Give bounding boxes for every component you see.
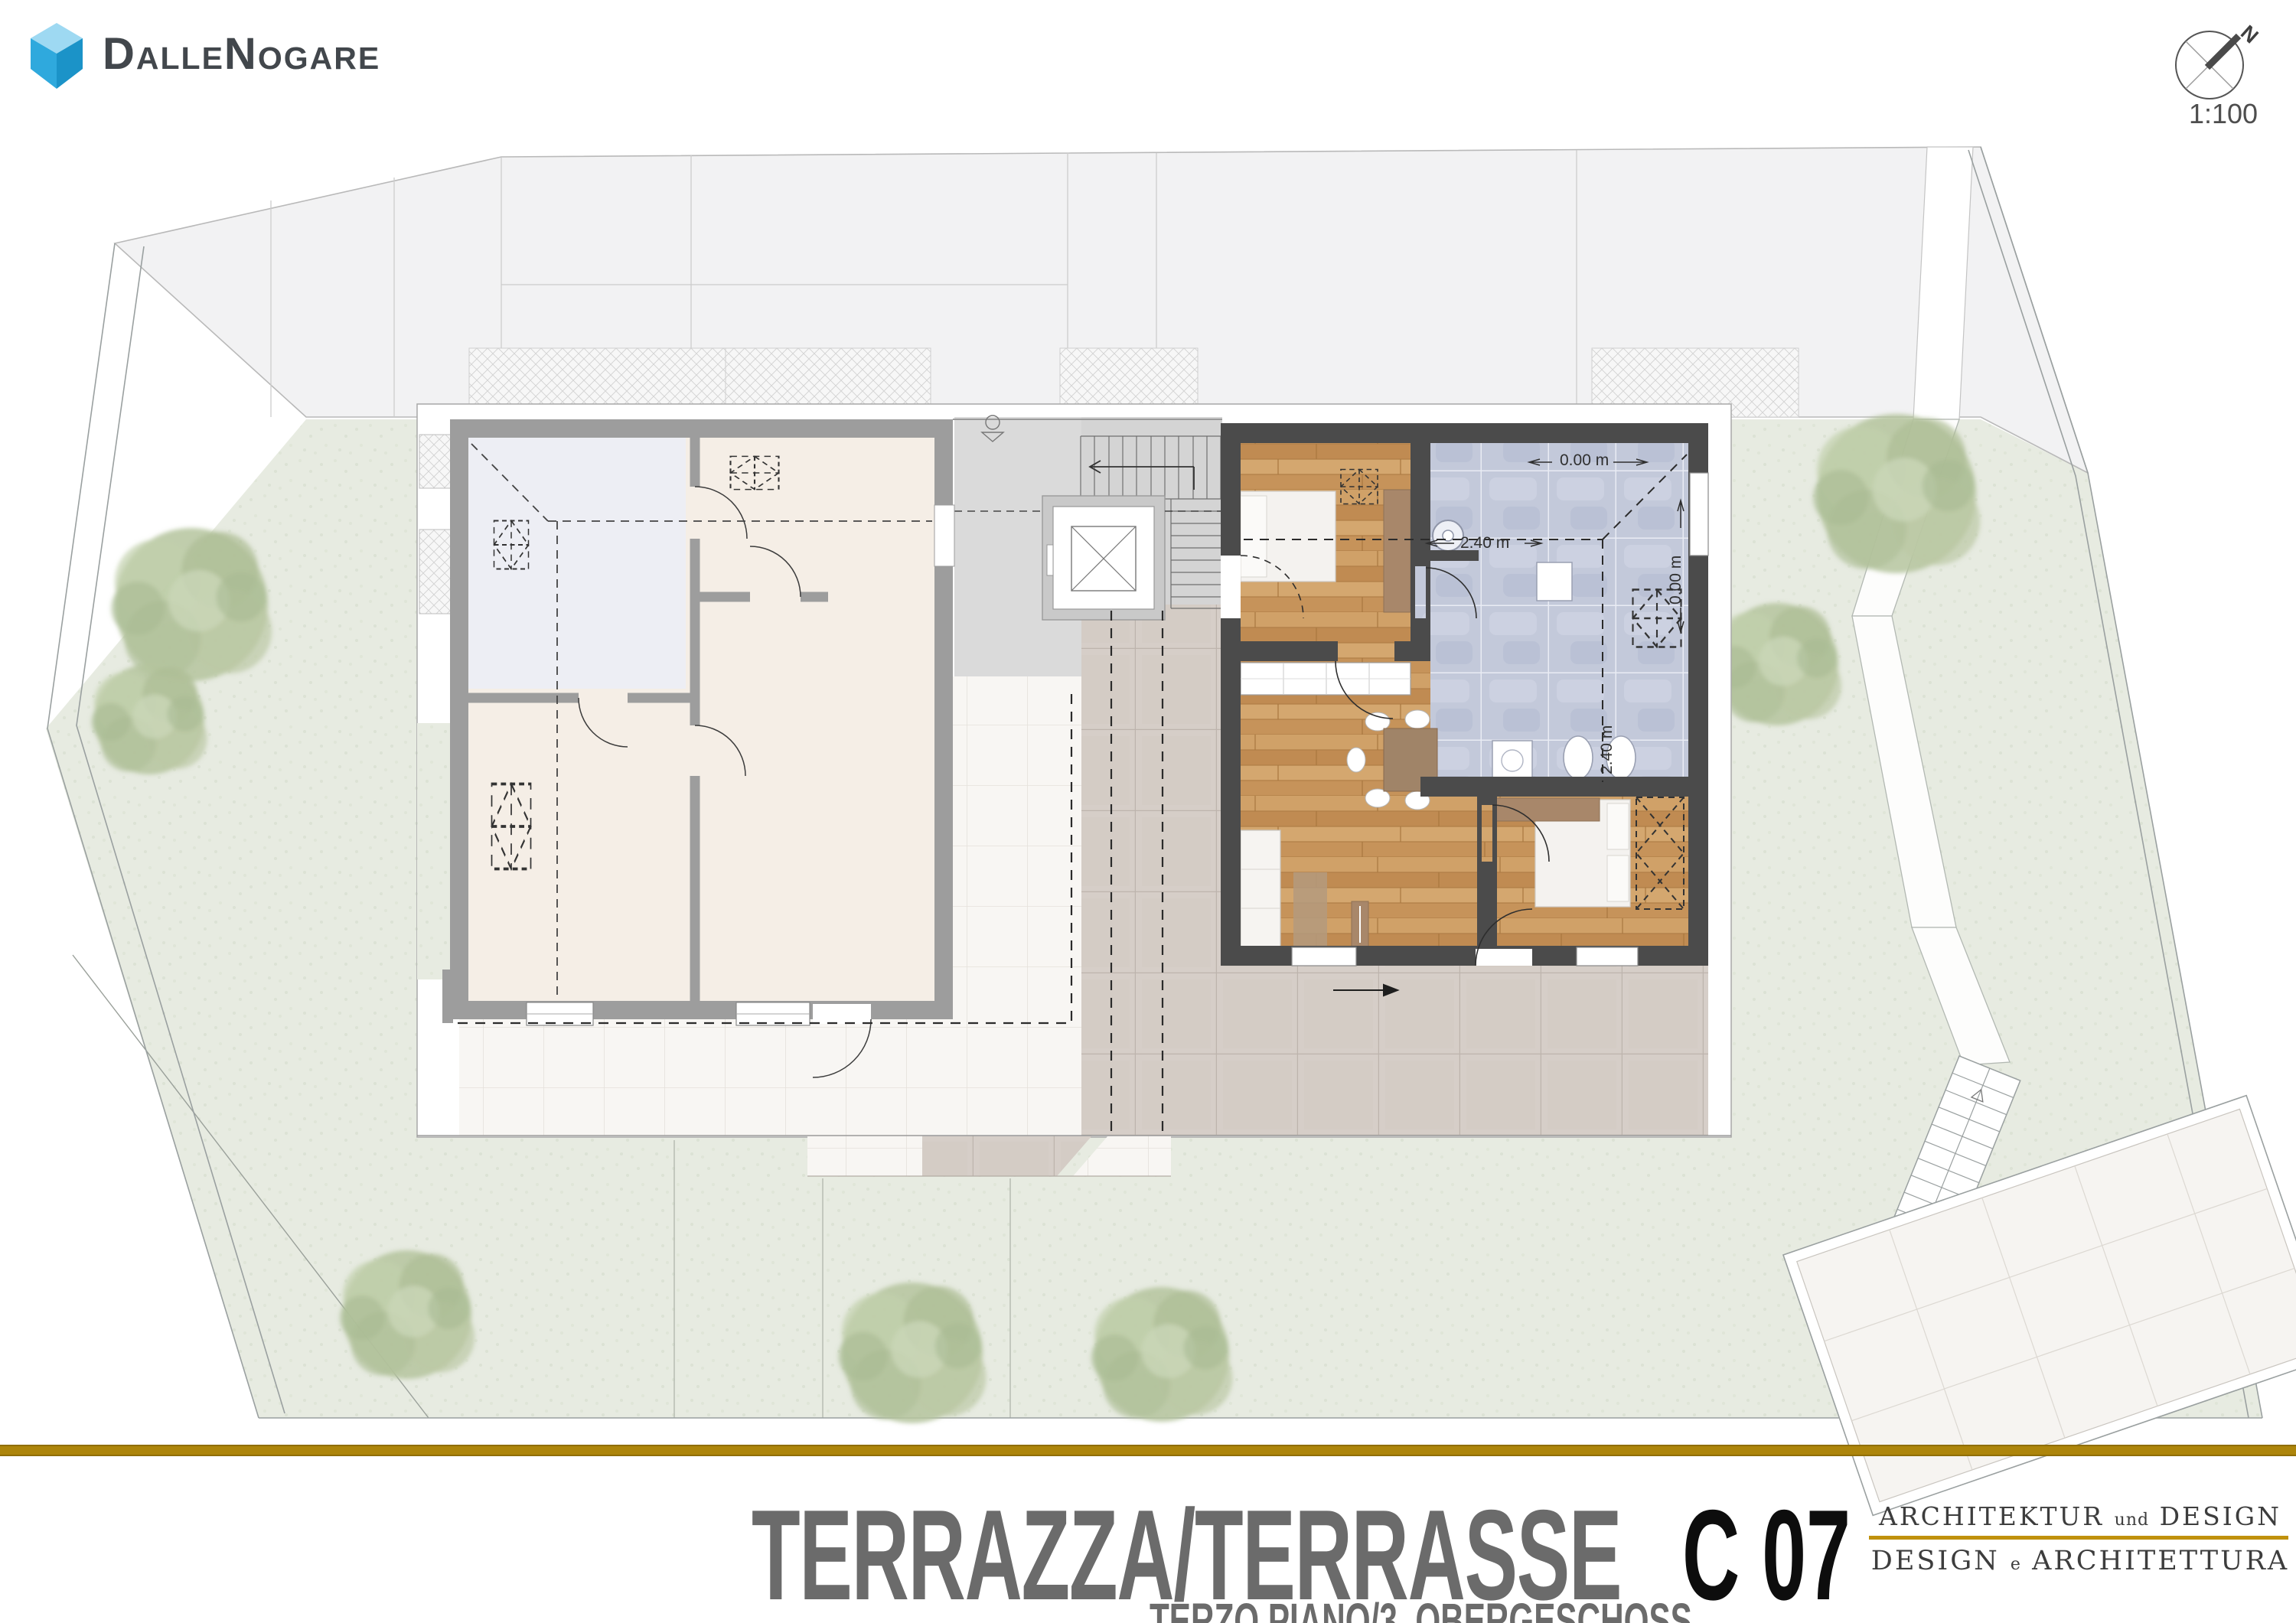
building: 0.00 m 2.40 m 2.40 m 0.00 m	[417, 404, 1731, 1176]
tree	[1813, 414, 1980, 573]
label-level-top: 0.00 m	[1560, 451, 1609, 469]
label-level-side: 0.00 m	[1667, 556, 1684, 605]
bed-single	[1241, 491, 1336, 582]
logo-cube-icon	[23, 18, 89, 90]
tree	[838, 1282, 986, 1423]
tv-board	[1352, 901, 1368, 947]
rug	[1293, 872, 1327, 946]
floor-plan-canvas: 0.00 m 2.40 m 2.40 m 0.00 m	[0, 0, 2296, 1623]
tree	[111, 528, 272, 681]
architect-word: DESIGN	[2160, 1501, 2281, 1531]
wardrobe	[1384, 490, 1411, 612]
unit-code: C 07	[1682, 1491, 1851, 1619]
company-wordmark: DalleNogare	[103, 32, 380, 77]
architect-line-1: ARCHITEKTUR und DESIGN	[1867, 1501, 2293, 1531]
unit-left	[459, 429, 954, 1077]
architect-conjunction: und	[2115, 1511, 2149, 1530]
label-height-mid: 2.40 m	[1460, 534, 1509, 552]
plan-sheet: 0.00 m 2.40 m 2.40 m 0.00 m	[0, 0, 2296, 1623]
tree	[340, 1250, 475, 1379]
drawing-scale: 1:100	[2174, 98, 2273, 130]
architect-conjunction: e	[2011, 1555, 2021, 1574]
gold-separator-bar	[0, 1445, 2296, 1456]
compass-north-label: N	[2236, 21, 2263, 47]
architect-line-2: DESIGN e ARCHITETTURA	[1867, 1546, 2293, 1576]
unit-c07: 0.00 m 2.40 m 2.40 m 0.00 m	[1221, 433, 1708, 996]
elevator	[1042, 496, 1165, 620]
compass: N	[2176, 21, 2263, 99]
sofa	[1241, 830, 1280, 947]
sink	[1537, 562, 1572, 601]
toilet	[1564, 736, 1593, 779]
tree	[1713, 603, 1841, 725]
wall-stub	[442, 970, 453, 1023]
sheet-subtitle: TERZO PIANO/3. OBERGESCHOSS	[1150, 1596, 1692, 1623]
kitchen-counter	[1241, 663, 1411, 695]
washing-machine	[1492, 741, 1532, 781]
architect-gold-rule	[1869, 1536, 2288, 1540]
architect-word: ARCHITEKTUR	[1879, 1501, 2104, 1531]
architect-word: DESIGN	[1871, 1546, 2000, 1576]
dresser	[1492, 798, 1600, 821]
tree	[1091, 1287, 1233, 1422]
tree	[91, 664, 207, 774]
architect-word: ARCHITETTURA	[2032, 1546, 2289, 1576]
compass-needle	[2207, 36, 2239, 67]
label-height-vert: 2.40 m	[1598, 725, 1616, 774]
company-logo: DalleNogare	[23, 18, 380, 90]
